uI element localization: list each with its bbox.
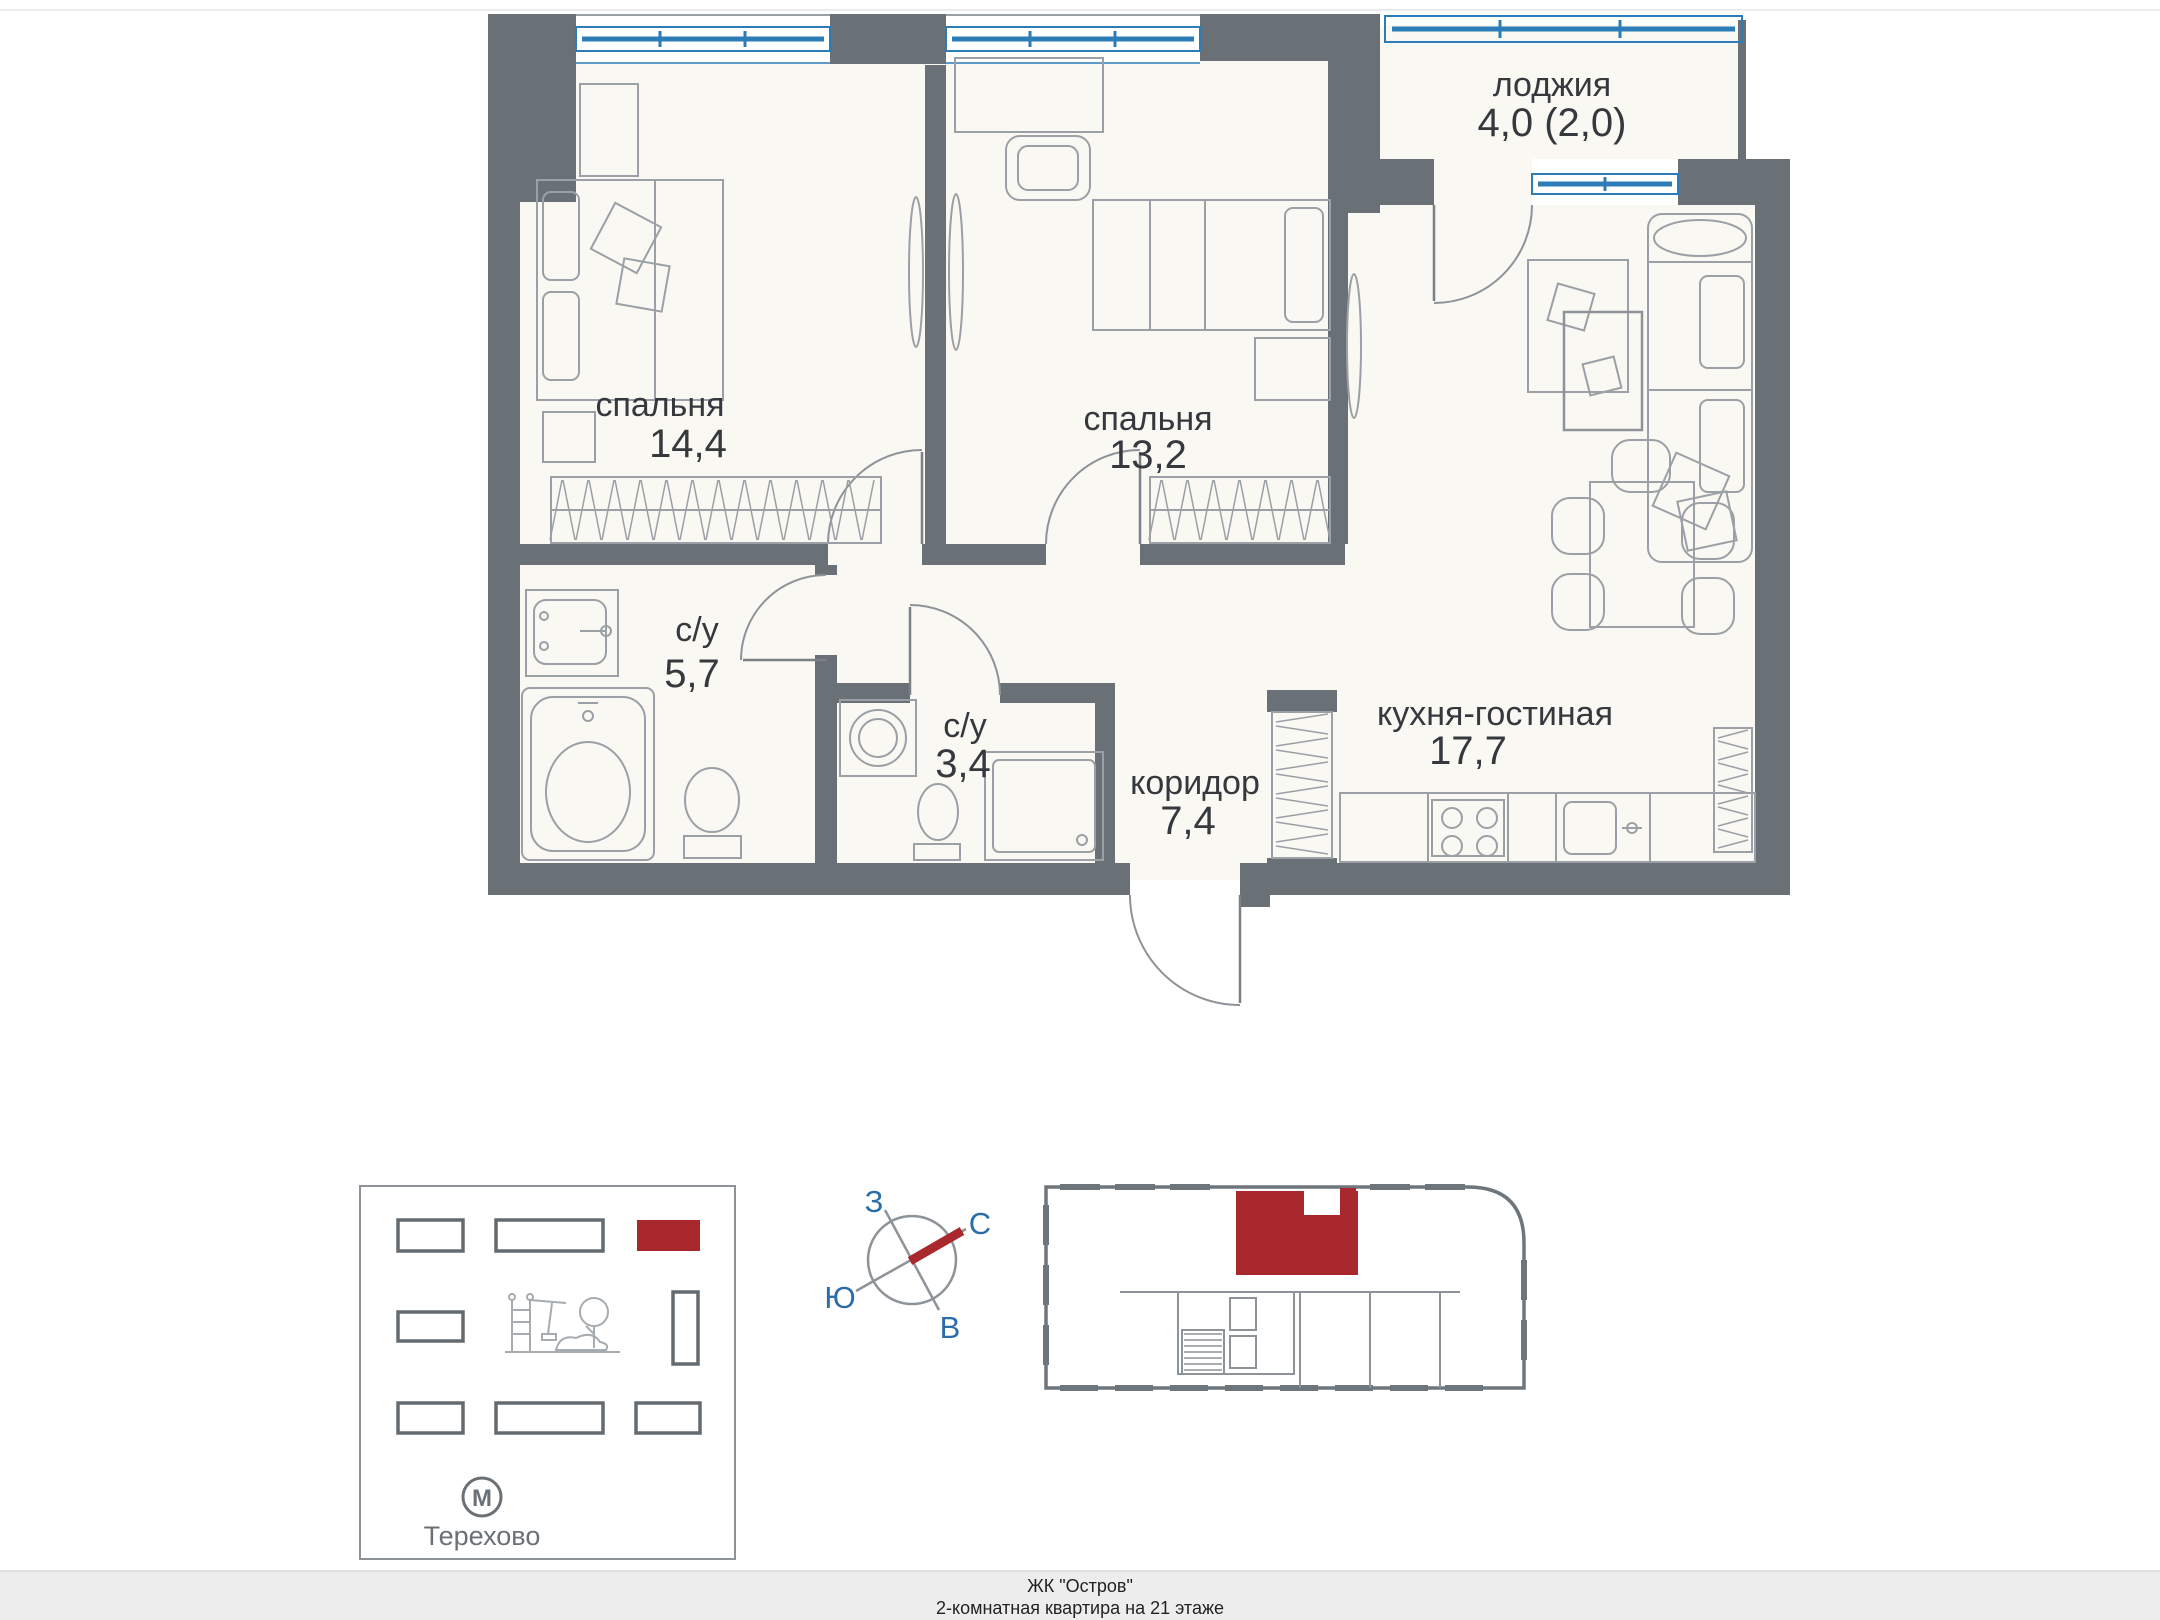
room-name-bedroom-1: спальня <box>595 386 724 424</box>
compass-rose: З С Ю В <box>824 1184 991 1345</box>
site-building <box>636 1403 700 1433</box>
room-name-bathroom-2: с/у <box>943 707 986 745</box>
door-entrance <box>1130 895 1240 1005</box>
metro-letter: М <box>472 1485 492 1512</box>
site-building <box>496 1220 603 1251</box>
footer-apartment-info: 2-комнатная квартира на 21 этаже <box>936 1598 1224 1618</box>
key-plan-highlighted-apartment <box>1236 1188 1358 1275</box>
room-name-kitchen-living: кухня-гостиная <box>1377 695 1613 733</box>
apartment-plan-page: спальня 14,4 спальня 13,2 лоджия 4,0 (2,… <box>0 0 2160 1620</box>
footer: ЖК "Остров" 2-комнатная квартира на 21 э… <box>0 1571 2160 1620</box>
site-building-highlighted <box>637 1220 700 1251</box>
compass-north-label: С <box>969 1206 991 1241</box>
room-area-kitchen-living: 17,7 <box>1429 729 1507 773</box>
building-key-plan <box>1046 1187 1524 1388</box>
room-area-loggia: 4,0 (2,0) <box>1478 101 1627 145</box>
room-name-bathroom-1: с/у <box>675 611 718 649</box>
room-area-bedroom-1: 14,4 <box>649 422 727 466</box>
room-name-corridor: коридор <box>1130 764 1260 802</box>
site-building <box>673 1292 698 1364</box>
site-building <box>398 1403 463 1433</box>
floor-plan: спальня 14,4 спальня 13,2 лоджия 4,0 (2,… <box>488 14 1790 1005</box>
room-name-loggia: лоджия <box>1493 66 1611 104</box>
compass-west-label: З <box>865 1184 884 1219</box>
metro-station-name: Терехово <box>424 1521 541 1551</box>
footer-complex-name: ЖК "Остров" <box>1027 1576 1133 1596</box>
plan-canvas: спальня 14,4 спальня 13,2 лоджия 4,0 (2,… <box>0 0 2160 1620</box>
site-plan: М Терехово <box>360 1186 735 1559</box>
site-building <box>398 1312 463 1341</box>
compass-east-label: В <box>940 1310 961 1345</box>
room-area-bathroom-1: 5,7 <box>664 652 720 696</box>
room-area-corridor: 7,4 <box>1160 799 1216 843</box>
site-building <box>398 1220 463 1251</box>
room-area-bathroom-2: 3,4 <box>935 742 991 786</box>
room-area-bedroom-2: 13,2 <box>1109 433 1187 477</box>
site-building <box>496 1403 603 1433</box>
compass-south-label: Ю <box>824 1280 855 1315</box>
